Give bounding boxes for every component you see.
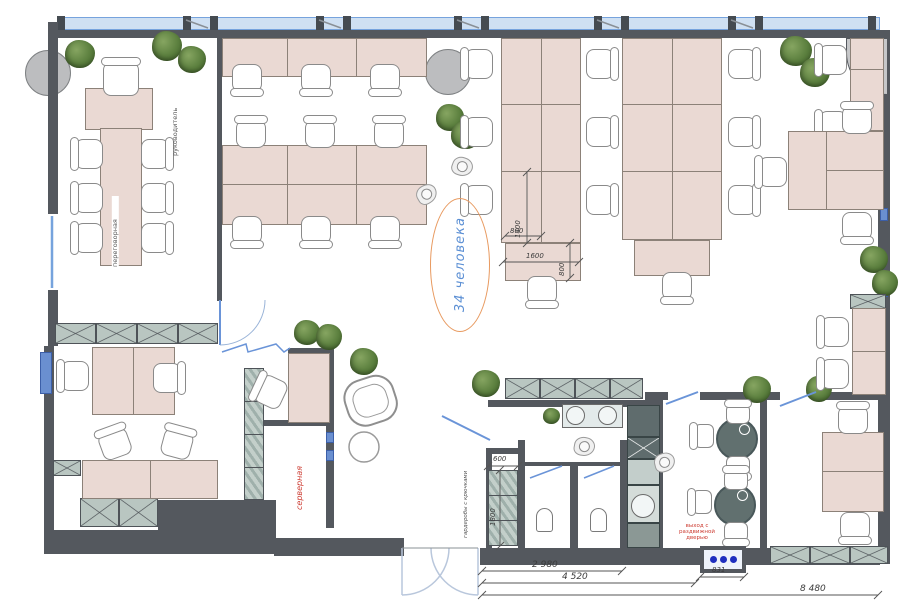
chair-icon <box>370 64 400 92</box>
tree-icon <box>860 246 888 273</box>
window-icon <box>40 352 52 394</box>
cabinet-icon <box>55 323 96 344</box>
divider <box>541 38 542 243</box>
window-mullion <box>343 16 351 31</box>
chair-icon <box>301 64 331 92</box>
door-leaf <box>442 416 490 440</box>
chair-icon <box>75 223 103 253</box>
chair-icon <box>819 45 847 75</box>
capacity-label: 34 человека <box>453 217 468 312</box>
dim-800a: 800 <box>510 227 523 235</box>
wall <box>518 462 627 466</box>
dot-icon <box>710 556 717 563</box>
chair-icon <box>370 216 400 244</box>
door-leaf <box>584 466 614 478</box>
cabinet-icon <box>505 378 540 399</box>
divider <box>672 38 673 240</box>
window-mullion <box>728 16 736 31</box>
cabinet-icon <box>96 323 137 344</box>
tree-icon <box>543 408 560 424</box>
cabinet-icon <box>850 546 888 564</box>
window-mullion <box>183 16 191 31</box>
cabinet-icon <box>540 378 575 399</box>
chair-icon <box>232 64 262 92</box>
chair-icon <box>465 49 493 79</box>
coffee-table-icon <box>349 432 379 462</box>
wall <box>570 462 578 548</box>
tree-icon <box>65 40 95 68</box>
chair-icon <box>75 139 103 169</box>
dim-1600: 1600 <box>526 252 544 260</box>
chair-icon <box>821 317 849 347</box>
person-icon <box>652 450 676 474</box>
chair-icon <box>141 183 169 213</box>
divider <box>287 145 288 225</box>
divider <box>133 347 134 415</box>
chair-icon <box>305 120 335 148</box>
chair-icon <box>692 490 712 514</box>
cabinet-icon <box>810 546 850 564</box>
toilet-icon <box>590 508 607 532</box>
sink-icon <box>631 494 655 518</box>
sink-icon <box>566 406 585 425</box>
chair-icon <box>728 49 756 79</box>
door-mark <box>326 432 334 443</box>
chair-icon <box>726 404 750 424</box>
divider <box>850 69 884 70</box>
tree-icon <box>472 370 500 397</box>
dining-table-icon <box>714 484 756 526</box>
chair-icon <box>301 216 331 244</box>
dot-icon <box>730 556 737 563</box>
cabinet-icon <box>770 546 810 564</box>
chair-icon <box>141 223 169 253</box>
dim-600: 600 <box>493 455 506 463</box>
dining-table-icon <box>716 418 758 460</box>
chair-icon <box>586 185 614 215</box>
capacity-annotation: 34 человека <box>430 198 490 332</box>
door-leaf <box>530 466 562 478</box>
partition-glass <box>222 344 290 352</box>
chair-icon <box>694 424 714 448</box>
chair-icon <box>724 470 748 490</box>
meeting-room-label: переговорная <box>112 196 119 268</box>
divider <box>356 145 357 225</box>
dim-8480: 8 480 <box>800 584 826 594</box>
wall <box>44 530 162 554</box>
chair-icon <box>662 272 692 300</box>
wardrobe-label: гардеробы с крючками <box>464 446 470 538</box>
wall <box>274 538 404 556</box>
meeting-table <box>100 128 142 266</box>
window-mullion <box>316 16 324 31</box>
kitchen-cabinet <box>627 405 660 437</box>
chair-icon <box>586 49 614 79</box>
wall <box>620 440 627 548</box>
dim-1800: 1800 <box>489 490 497 526</box>
divider <box>852 351 886 352</box>
window-mullion <box>57 16 65 31</box>
chair-icon <box>61 361 89 391</box>
chair-icon <box>840 512 870 540</box>
dot-icon <box>720 556 727 563</box>
door-arc <box>220 300 265 345</box>
divider <box>244 434 264 435</box>
chair-icon <box>236 120 266 148</box>
window-mullion <box>621 16 629 31</box>
exit-note-label: выход с раздвижной дверью <box>668 524 726 541</box>
chair-icon <box>728 185 756 215</box>
chair-icon <box>75 183 103 213</box>
chair-icon <box>724 522 748 542</box>
chair-icon <box>153 363 181 393</box>
divider <box>622 104 722 105</box>
manager-label: руководитель <box>172 92 179 156</box>
cabinet-icon <box>575 378 610 399</box>
chair-icon <box>838 406 868 434</box>
dim-800b: 800 <box>558 246 566 276</box>
wall <box>645 392 668 400</box>
cabinet-icon <box>80 498 119 527</box>
divider <box>501 171 581 172</box>
divider <box>222 184 427 185</box>
divider <box>150 460 151 499</box>
chair-icon <box>586 117 614 147</box>
chair-icon <box>821 359 849 389</box>
divider <box>244 467 264 468</box>
cabinet-icon <box>137 323 178 344</box>
chair-icon <box>842 212 872 240</box>
divider <box>356 38 357 77</box>
window-mullion <box>755 16 763 31</box>
divider <box>826 170 884 171</box>
divider <box>822 471 884 472</box>
door-leaf <box>666 392 698 404</box>
cabinet-icon <box>610 378 643 399</box>
person-icon <box>572 434 595 457</box>
wall <box>760 400 767 548</box>
chair-icon <box>159 427 195 462</box>
chair-icon <box>96 426 134 463</box>
dim-831: 831 <box>712 566 725 574</box>
desk <box>634 240 710 276</box>
fridge-icon <box>627 523 660 548</box>
entrance-doors <box>402 548 478 595</box>
server-room-label: серверная <box>296 438 304 510</box>
chair-icon <box>527 276 557 304</box>
tree-icon <box>316 324 342 350</box>
tree-icon <box>350 348 378 375</box>
divider <box>287 38 288 77</box>
desk <box>288 353 330 423</box>
wall <box>158 500 276 554</box>
cabinet-icon <box>178 323 218 344</box>
window-mullion <box>594 16 602 31</box>
cabinet-icon <box>119 498 158 527</box>
window-mullion <box>481 16 489 31</box>
wall <box>518 440 525 548</box>
wall <box>48 22 58 214</box>
chair-icon <box>842 106 872 134</box>
chair-icon <box>141 139 169 169</box>
chair-icon <box>374 120 404 148</box>
tree-icon <box>178 46 206 73</box>
cabinet-icon <box>850 294 886 309</box>
divider <box>622 171 722 172</box>
floor-plan: 34 человека переговорная руководитель се… <box>0 0 900 604</box>
chair-icon <box>728 117 756 147</box>
dim-2980: 2 980 <box>532 560 558 570</box>
door-mark <box>326 450 334 461</box>
dim-4520: 4 520 <box>562 572 588 582</box>
chair-icon <box>759 157 787 187</box>
tree-icon <box>872 270 898 296</box>
person-icon <box>449 153 475 179</box>
toilet-icon <box>536 508 553 532</box>
chair-icon <box>103 62 139 96</box>
window-mullion <box>868 16 876 31</box>
divider <box>501 104 581 105</box>
window-mullion <box>210 16 218 31</box>
chair-icon <box>232 216 262 244</box>
chair-icon <box>465 117 493 147</box>
sofa-icon <box>340 371 402 430</box>
window-mullion <box>454 16 462 31</box>
sink-icon <box>598 406 617 425</box>
desk <box>822 432 884 512</box>
cabinet-icon <box>53 460 81 476</box>
desk <box>222 145 427 225</box>
